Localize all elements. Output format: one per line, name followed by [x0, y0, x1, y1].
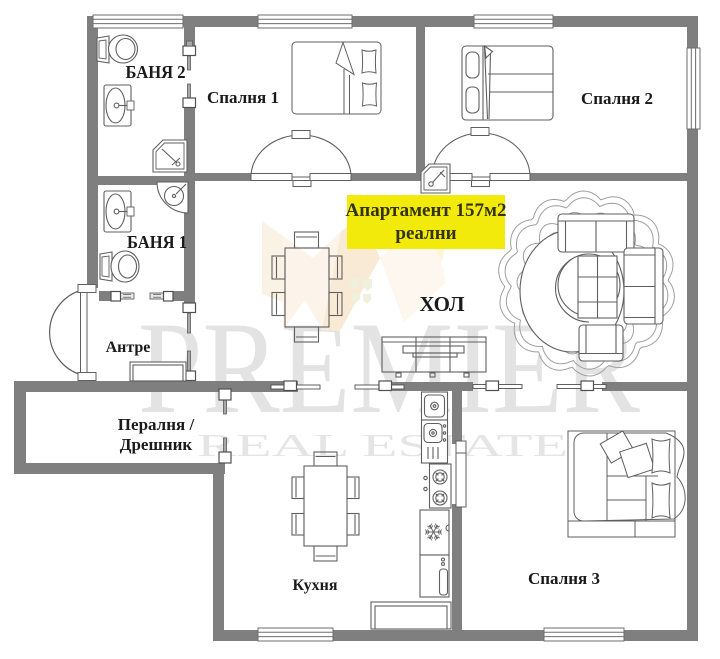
svg-text:Спалня 3: Спалня 3 [528, 569, 600, 588]
svg-text:БАНЯ 2: БАНЯ 2 [126, 62, 186, 82]
svg-text:REAL ESTATE: REAL ESTATE [197, 427, 568, 463]
svg-text:реални: реални [395, 223, 456, 244]
svg-text:БАНЯ 1: БАНЯ 1 [127, 232, 187, 252]
svg-text:Антре: Антре [106, 339, 151, 356]
svg-text:Спалня 2: Спалня 2 [581, 89, 653, 108]
svg-text:Пералня /: Пералня / [118, 415, 195, 434]
svg-text:Апартамент 157м2: Апартамент 157м2 [346, 200, 507, 221]
svg-text:Кухня: Кухня [292, 577, 337, 594]
svg-text:Спалня 1: Спалня 1 [207, 88, 279, 107]
svg-text:ХОЛ: ХОЛ [419, 292, 464, 316]
svg-text:Дрешник: Дрешник [120, 435, 193, 454]
